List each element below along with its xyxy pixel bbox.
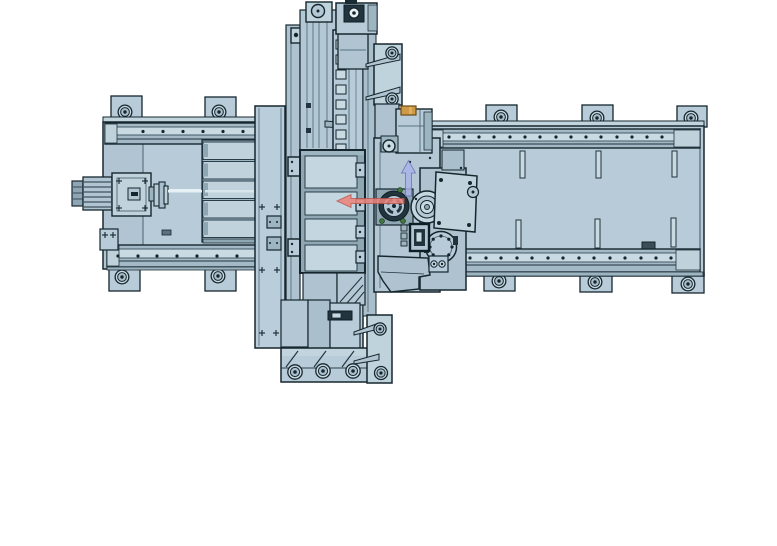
cad-model-viewport[interactable]: [0, 0, 777, 546]
way-cover-fins: [202, 140, 257, 243]
machine-plan-view-drawing: [0, 0, 777, 546]
